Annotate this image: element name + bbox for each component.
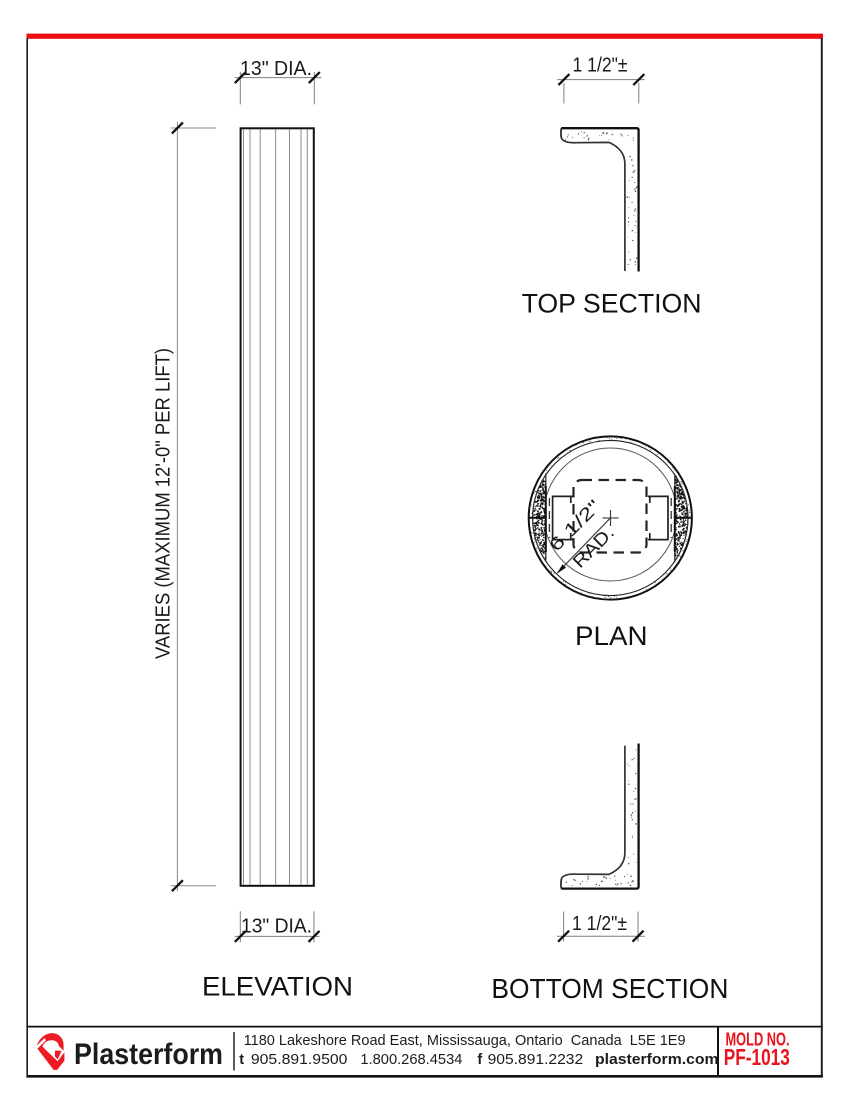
svg-text:Plasterform: Plasterform — [74, 1038, 223, 1071]
svg-text:plasterform.com: plasterform.com — [595, 1052, 719, 1068]
svg-text:BOTTOM SECTION: BOTTOM SECTION — [491, 973, 728, 1004]
svg-text:TOP SECTION: TOP SECTION — [522, 289, 702, 319]
svg-text:13" DIA.: 13" DIA. — [241, 916, 312, 938]
svg-text:905.891.9500: 905.891.9500 — [251, 1052, 348, 1068]
svg-text:PLAN: PLAN — [575, 621, 648, 651]
svg-text:VARIES (MAXIMUM 12'-0" PER LIF: VARIES (MAXIMUM 12'-0" PER LIFT) — [153, 348, 175, 659]
svg-text:13" DIA.: 13" DIA. — [240, 58, 312, 80]
svg-text:1180 Lakeshore Road East, Miss: 1180 Lakeshore Road East, Mississauga, O… — [244, 1033, 686, 1049]
svg-text:f: f — [477, 1052, 482, 1068]
svg-text:1.800.268.4534: 1.800.268.4534 — [360, 1052, 462, 1068]
svg-text:PF-1013: PF-1013 — [724, 1044, 790, 1070]
svg-text:905.891.2232: 905.891.2232 — [488, 1052, 584, 1068]
svg-text:1 1/2"±: 1 1/2"± — [572, 913, 627, 935]
svg-text:1 1/2"±: 1 1/2"± — [573, 55, 628, 77]
svg-text:ELEVATION: ELEVATION — [202, 972, 353, 1002]
svg-text:t: t — [239, 1052, 244, 1068]
